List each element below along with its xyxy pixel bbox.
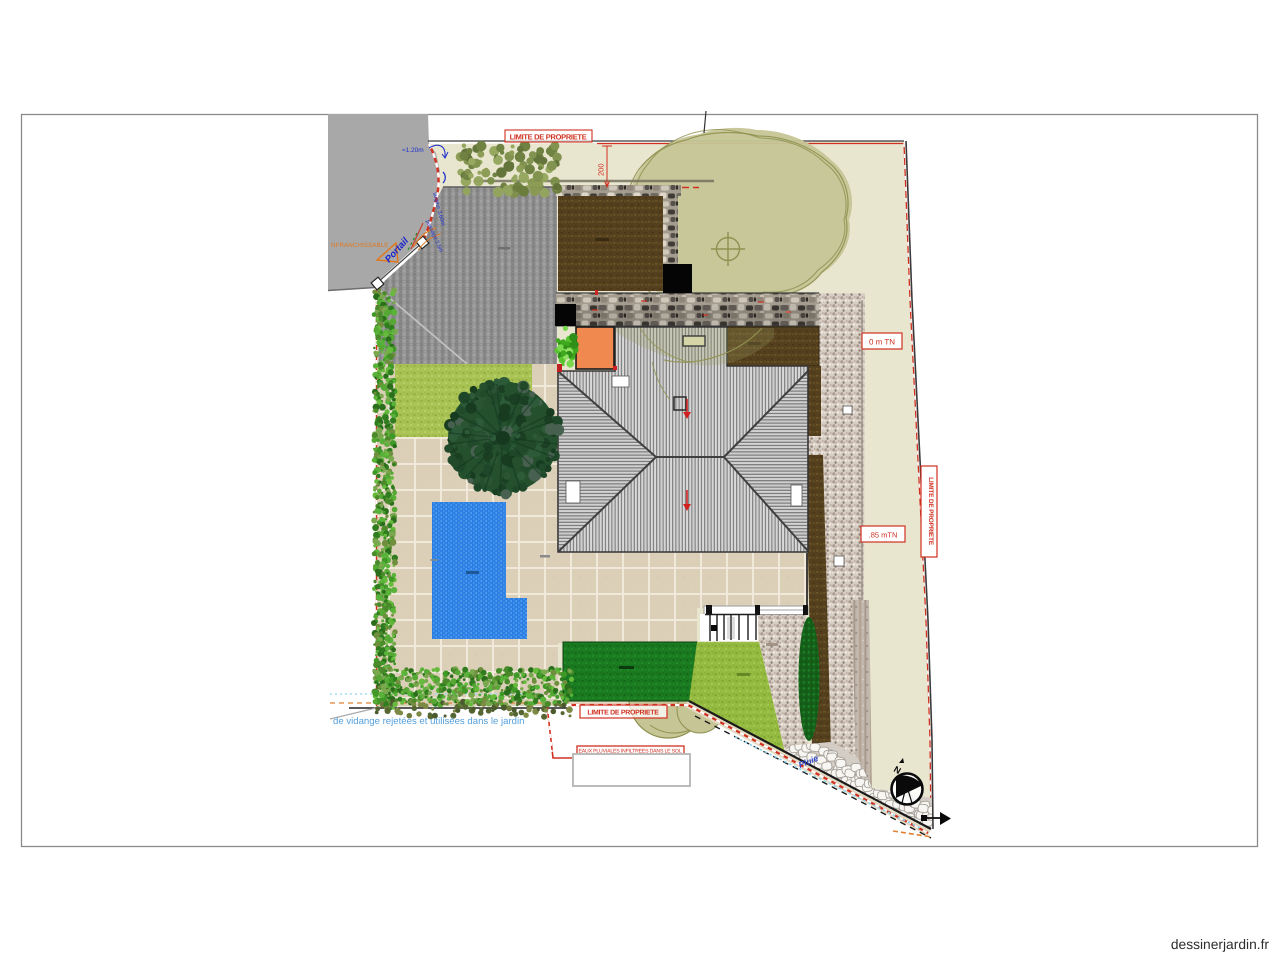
svg-text:0 m TN: 0 m TN xyxy=(869,338,895,347)
svg-text:LIMITE DE PROPRIETE: LIMITE DE PROPRIETE xyxy=(510,133,587,142)
svg-text:de vidange rejetées et utilisé: de vidange rejetées et utilisées dans le… xyxy=(333,716,524,727)
svg-text:LIMITE DE PROPRIETE: LIMITE DE PROPRIETE xyxy=(587,710,659,717)
svg-text:dessinerjardin.fr: dessinerjardin.fr xyxy=(1171,937,1270,952)
svg-text:≈1.20m: ≈1.20m xyxy=(402,147,424,154)
svg-text:.85 mTN: .85 mTN xyxy=(869,531,898,540)
svg-text:NFRANCHISSABLE: NFRANCHISSABLE xyxy=(331,242,388,249)
svg-text:LIMITE DE PROPRIETE: LIMITE DE PROPRIETE xyxy=(927,477,934,546)
svg-text:200: 200 xyxy=(597,163,606,176)
